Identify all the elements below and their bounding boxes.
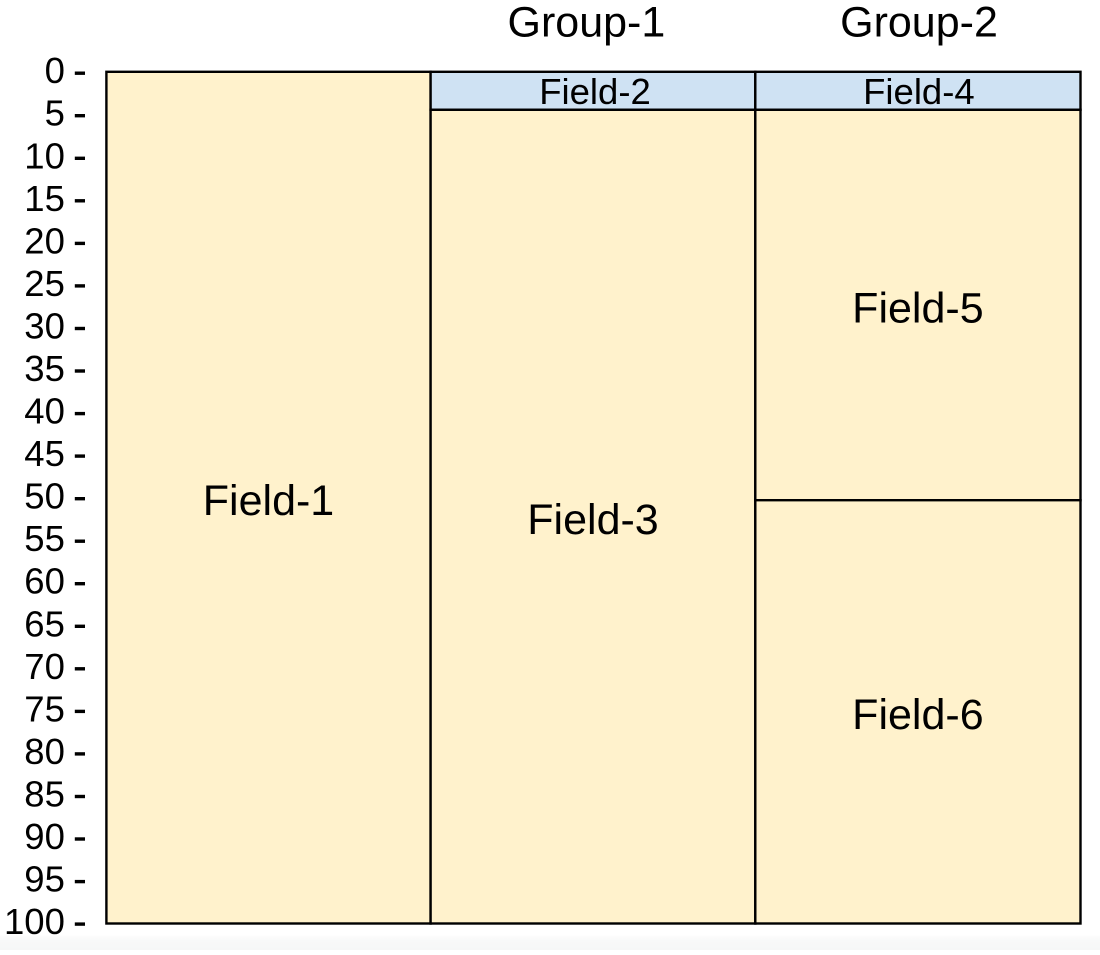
svg-text:Group-2: Group-2 [840, 0, 998, 46]
svg-text:85: 85 [24, 774, 65, 815]
svg-text:90: 90 [24, 816, 65, 857]
svg-text:Field-3: Field-3 [527, 496, 658, 544]
svg-text:5: 5 [45, 93, 65, 134]
svg-text:10: 10 [24, 135, 65, 176]
svg-text:35: 35 [24, 348, 65, 389]
svg-text:30: 30 [24, 306, 65, 347]
svg-text:40: 40 [24, 391, 65, 432]
svg-text:95: 95 [24, 859, 65, 900]
svg-text:100: 100 [4, 901, 65, 942]
svg-text:15: 15 [24, 178, 65, 219]
svg-text:25: 25 [24, 263, 65, 304]
svg-text:Field-6: Field-6 [852, 691, 983, 739]
svg-text:75: 75 [24, 688, 65, 729]
svg-text:20: 20 [24, 220, 65, 261]
svg-text:70: 70 [24, 646, 65, 687]
svg-text:60: 60 [24, 561, 65, 602]
svg-text:0: 0 [45, 50, 65, 91]
svg-text:80: 80 [24, 731, 65, 772]
svg-text:50: 50 [24, 476, 65, 517]
svg-text:Field-2: Field-2 [539, 71, 651, 112]
svg-text:45: 45 [24, 433, 65, 474]
svg-text:Field-4: Field-4 [863, 71, 975, 112]
svg-text:55: 55 [24, 518, 65, 559]
svg-text:Field-1: Field-1 [203, 477, 334, 525]
svg-text:Field-5: Field-5 [852, 284, 983, 332]
svg-text:65: 65 [24, 603, 65, 644]
svg-text:Group-1: Group-1 [508, 0, 666, 46]
